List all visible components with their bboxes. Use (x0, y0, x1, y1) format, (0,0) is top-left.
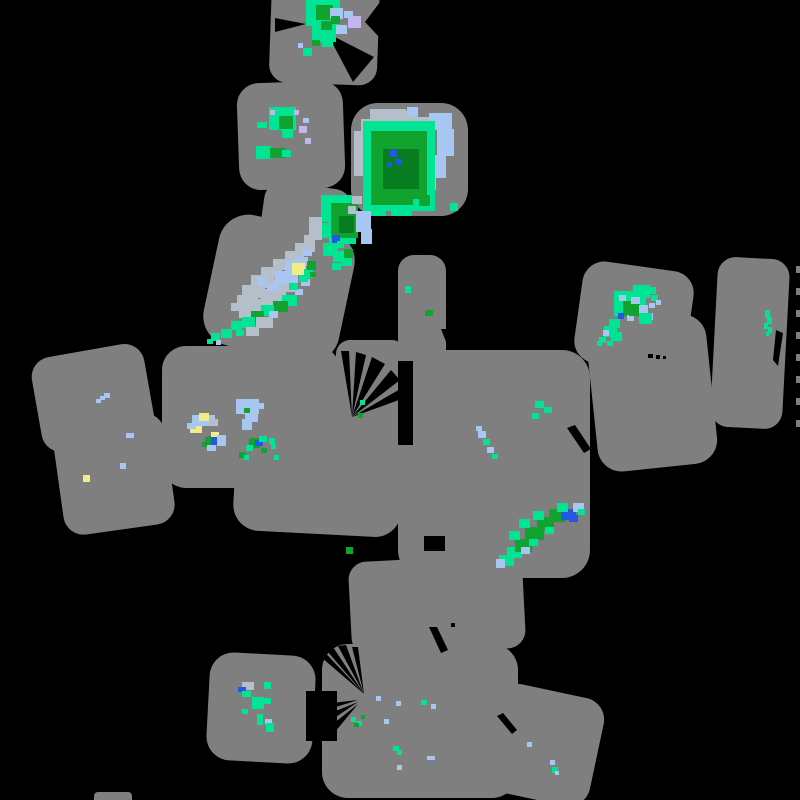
echo-very-light-echo (256, 317, 273, 328)
echo-light-rain-echo (303, 48, 312, 56)
echo-light-rain-echo (351, 717, 356, 722)
echo-moderate-rain-echo (346, 547, 353, 554)
echo-light-echo (431, 704, 436, 709)
echo-moderate-rain-echo (261, 448, 267, 453)
echo-mixed-precip-echo (270, 110, 275, 115)
echo-light-rain-echo (492, 454, 498, 459)
echo-moderate-rain-echo (419, 195, 430, 206)
echo-light-rain-echo (369, 205, 386, 216)
echo-light-rain-echo (766, 332, 769, 336)
echo-light-rain-echo (269, 438, 275, 444)
echo-light-rain-echo (274, 455, 279, 460)
echo-light-echo (396, 701, 401, 706)
echo-light-rain-echo (532, 413, 539, 419)
echo-light-echo (476, 426, 482, 431)
echo-light-rain-echo (271, 444, 276, 449)
echo-light-echo (104, 393, 110, 398)
echo-heavy-rain-echo (339, 216, 354, 233)
echo-intense-core-echo (569, 515, 578, 522)
echo-light-echo (217, 435, 226, 446)
edge-dash (796, 398, 800, 405)
echo-light-rain-echo (264, 682, 271, 689)
echo-light-rain-echo (337, 241, 344, 248)
echo-moderate-rain-echo (361, 715, 365, 719)
echo-light-rain-echo (647, 287, 656, 294)
radar-composite-map (0, 0, 800, 800)
echo-light-rain-echo (405, 286, 411, 293)
echo-light-rain-echo (639, 313, 652, 324)
echo-moderate-rain-echo (244, 408, 250, 413)
echo-light-echo (216, 340, 221, 345)
echo-light-rain-echo (289, 283, 298, 290)
edge-dash (796, 354, 800, 361)
edge-dash (796, 266, 800, 273)
echo-embedded-heavier-echo (292, 263, 305, 275)
echo-light-rain-echo (607, 341, 613, 346)
echo-moderate-rain-echo (358, 413, 363, 418)
echo-light-rain-echo (557, 503, 568, 512)
echo-light-echo (427, 756, 435, 760)
echo-embedded-heavier-echo (83, 475, 90, 482)
echo-light-rain-echo (509, 531, 520, 540)
blockage-gap (398, 361, 413, 445)
echo-light-rain-echo (529, 539, 538, 546)
echo-light-echo (649, 303, 655, 308)
radar-footprint (51, 411, 177, 537)
echo-very-light-echo (352, 196, 362, 204)
echo-very-light-echo (348, 206, 356, 214)
echo-light-rain-echo (535, 401, 544, 408)
echo-light-rain-echo (611, 332, 622, 341)
blockage-gap (656, 355, 660, 359)
echo-light-echo (437, 129, 454, 156)
echo-light-rain-echo (221, 329, 232, 338)
echo-moderate-rain-echo (331, 16, 340, 24)
echo-mixed-precip-echo (294, 110, 299, 115)
echo-light-echo (257, 403, 264, 409)
blockage-gap (306, 691, 337, 741)
echo-light-echo (126, 433, 134, 438)
echo-light-rain-echo (257, 122, 267, 128)
echo-light-rain-echo (341, 257, 352, 266)
echo-mixed-precip-echo (299, 126, 307, 133)
echo-embedded-heavier-echo (199, 413, 209, 421)
echo-light-rain-echo (266, 723, 274, 732)
echo-light-rain-echo (519, 519, 530, 528)
echo-light-rain-echo (256, 146, 271, 159)
blockage-gap (424, 536, 445, 551)
echo-light-echo (344, 11, 353, 18)
echo-light-rain-echo (257, 719, 263, 725)
echo-light-rain-echo (764, 323, 768, 329)
echo-light-rain-echo (450, 203, 458, 211)
echo-moderate-rain-echo (344, 249, 353, 258)
blockage-gap (663, 356, 666, 359)
echo-moderate-rain-echo (202, 442, 207, 447)
echo-light-echo (303, 118, 309, 123)
echo-light-echo (269, 311, 278, 318)
echo-moderate-rain-echo (310, 272, 316, 277)
echo-very-light-echo (246, 327, 259, 336)
echo-intense-core-echo (387, 162, 392, 167)
edge-dash (796, 376, 800, 383)
echo-moderate-rain-echo (354, 723, 359, 727)
echo-light-echo (361, 229, 372, 244)
echo-moderate-rain-echo (279, 116, 293, 129)
echo-light-echo (298, 43, 303, 48)
echo-light-echo (656, 300, 661, 305)
echo-light-echo (336, 25, 347, 34)
echo-light-rain-echo (246, 445, 253, 451)
blockage-gap (451, 623, 455, 627)
echo-light-rain-echo (252, 697, 264, 709)
echo-moderate-rain-echo (425, 310, 433, 316)
echo-light-echo (527, 742, 532, 747)
echo-light-rain-echo (483, 439, 490, 445)
echo-light-echo (619, 295, 626, 301)
echo-light-echo (603, 330, 609, 336)
echo-intense-core-echo (390, 150, 397, 157)
echo-light-echo (478, 431, 486, 438)
echo-light-echo (267, 283, 279, 291)
echo-light-rain-echo (332, 263, 341, 270)
echo-light-rain-echo (421, 700, 427, 705)
echo-moderate-rain-echo (629, 309, 638, 316)
edge-dash (796, 420, 800, 427)
echo-light-rain-echo (765, 310, 770, 318)
echo-light-rain-echo (544, 407, 552, 413)
echo-moderate-rain-echo (307, 261, 316, 270)
echo-light-rain-echo (242, 709, 248, 714)
echo-very-light-echo (209, 419, 218, 426)
echo-light-rain-echo (597, 341, 602, 346)
edge-dash (796, 288, 800, 295)
edge-dash (796, 332, 800, 339)
echo-light-echo (376, 696, 381, 701)
echo-light-rain-echo (264, 698, 271, 704)
echo-light-echo (631, 297, 640, 304)
echo-light-echo (207, 445, 216, 451)
echo-intense-core-echo (396, 159, 402, 165)
echo-very-light-echo (231, 303, 241, 311)
blockage-gap (648, 354, 653, 358)
echo-moderate-rain-echo (273, 301, 288, 312)
radar-mosaic-stage (0, 0, 800, 800)
echo-light-echo (639, 305, 648, 314)
echo-light-echo (397, 765, 402, 770)
echo-light-echo (257, 277, 266, 286)
echo-light-rain-echo (391, 207, 412, 216)
echo-light-rain-echo (231, 321, 242, 330)
echo-light-rain-echo (282, 150, 291, 157)
echo-light-echo (407, 107, 418, 116)
radar-footprint (94, 792, 132, 800)
echo-light-echo (384, 719, 389, 724)
echo-light-rain-echo (299, 275, 308, 282)
echo-light-rain-echo (545, 527, 554, 534)
echo-light-rain-echo (244, 455, 249, 460)
echo-light-echo (120, 463, 126, 469)
echo-mixed-precip-echo (305, 138, 311, 144)
echo-light-echo (303, 249, 312, 256)
echo-moderate-rain-echo (312, 40, 320, 46)
echo-light-rain-echo (259, 436, 267, 442)
echo-light-echo (487, 447, 494, 453)
echo-light-echo (521, 547, 530, 554)
edge-dash (796, 310, 800, 317)
echo-light-echo (242, 419, 252, 430)
echo-light-rain-echo (397, 750, 402, 755)
echo-light-rain-echo (242, 317, 255, 328)
echo-light-rain-echo (236, 330, 244, 336)
echo-light-echo (496, 559, 505, 568)
echo-light-echo (555, 771, 559, 775)
echo-light-rain-echo (533, 511, 544, 520)
echo-light-rain-echo (282, 129, 293, 138)
echo-light-echo (356, 211, 371, 232)
echo-moderate-rain-echo (321, 21, 332, 30)
echo-light-echo (187, 423, 196, 429)
echo-intense-core-echo (618, 313, 624, 319)
echo-light-rain-echo (242, 691, 251, 697)
echo-light-echo (550, 760, 555, 765)
echo-light-rain-echo (360, 400, 365, 405)
echo-light-rain-echo (578, 509, 585, 515)
echo-light-rain-echo (767, 317, 772, 324)
echo-light-rain-echo (322, 38, 333, 47)
echo-light-rain-echo (207, 339, 213, 344)
echo-heavy-rain-echo (383, 149, 419, 189)
